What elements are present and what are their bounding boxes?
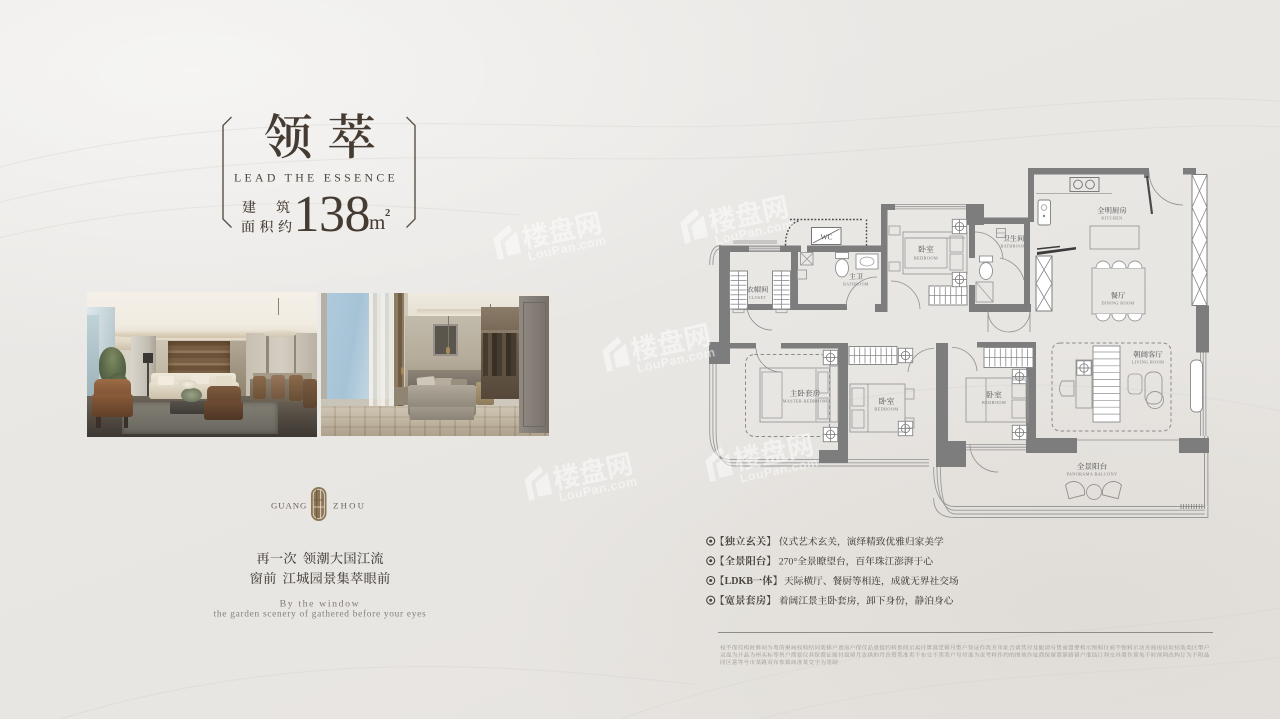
svg-text:DINING ROOM: DINING ROOM [1102,301,1135,306]
svg-text:KITCHEN: KITCHEN [1101,216,1122,221]
svg-text:m: m [369,210,385,234]
svg-text:LDKB: LDKB [725,576,754,587]
svg-text:BATHROOM: BATHROOM [843,282,869,287]
svg-text:BEDROOM: BEDROOM [982,400,1006,405]
svg-text:BEDROOM: BEDROOM [914,256,938,261]
svg-text:LIVING ROOM: LIVING ROOM [1132,360,1164,365]
svg-text:the garden scenery of gathered: the garden scenery of gathered before yo… [214,609,427,620]
svg-text:ZHOU: ZHOU [333,501,366,511]
svg-text:270°: 270° [779,557,798,568]
svg-text:BEDROOM: BEDROOM [874,407,898,412]
svg-text:WC: WC [820,233,832,242]
svg-text:GUANG: GUANG [271,501,307,511]
svg-text:LEAD THE ESSENCE: LEAD THE ESSENCE [234,171,398,185]
svg-text:138: 138 [294,186,371,243]
svg-text:PANORAMA BALCONY: PANORAMA BALCONY [1066,472,1117,477]
svg-text:2: 2 [385,208,390,219]
svg-text:CLOSET: CLOSET [749,295,767,300]
svg-text:MASTER BEDROOM: MASTER BEDROOM [783,399,828,404]
svg-text:By the window: By the window [280,599,361,610]
svg-text:BATHROOM: BATHROOM [1001,244,1027,249]
